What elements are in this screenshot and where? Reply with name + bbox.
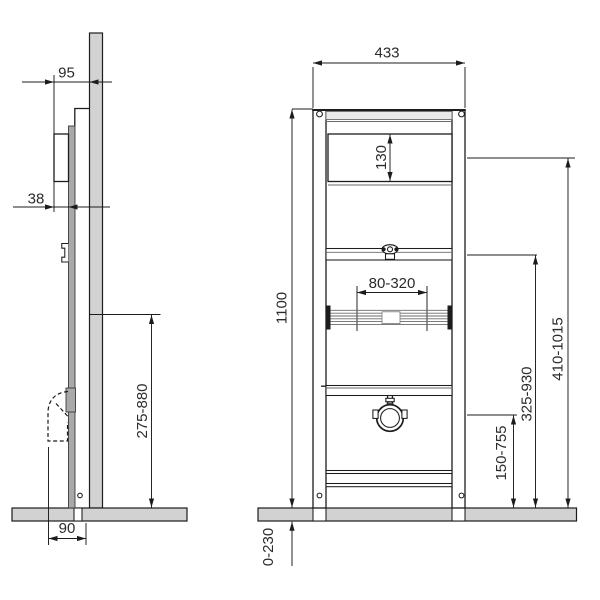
technical-drawing: 95 38 275-880 90 130 [0, 0, 600, 600]
fitting-wing-right [394, 247, 398, 251]
fixing-screw-side [78, 493, 83, 498]
rail-end-bracket-left [327, 306, 331, 330]
dim-label-433: 433 [374, 45, 399, 62]
frame-left-rail [313, 110, 326, 508]
rail-center-slider [382, 312, 400, 324]
drain-crossbar [326, 386, 452, 396]
lower-crossbar-upper [326, 471, 452, 474]
top-crossbar [326, 112, 452, 120]
drain-elbow-dashed [48, 392, 68, 442]
lower-crossbar-lower [326, 484, 452, 487]
frame-rail-side [69, 126, 76, 508]
dim-label-275-880: 275-880 [134, 383, 151, 438]
dim-label-325-930: 325-930 [518, 366, 535, 421]
pipe-clip-side [62, 244, 69, 263]
left-leg-through-floor [313, 508, 326, 521]
wall-bracket-side [75, 109, 90, 127]
dim-label-38: 38 [28, 191, 45, 208]
dim-label-80-320: 80-320 [369, 275, 416, 292]
screw-hole-bottom-right [459, 493, 464, 498]
clamp-inner-ring [381, 409, 400, 428]
frame-right-rail [452, 110, 465, 508]
dim-label-130: 130 [373, 145, 390, 170]
cistern-side [54, 134, 69, 182]
dim-label-410-1015: 410-1015 [549, 317, 566, 380]
fitting-wing-left [382, 247, 386, 251]
rail-end-bracket-right [448, 306, 452, 330]
screw-hole-bottom-left [317, 493, 322, 498]
clamp-bolt-left [373, 410, 378, 418]
dim-label-0-230: 0-230 [260, 528, 277, 566]
fitting-base [386, 254, 395, 259]
right-leg-through-floor [452, 508, 465, 521]
dim-label-150-755: 150-755 [493, 425, 510, 480]
front-view: 130 80-320 [258, 110, 577, 521]
dim-label-1100: 1100 [273, 292, 290, 324]
floor-slab-front [258, 508, 577, 521]
floor-slab-side [12, 508, 187, 521]
side-view-dimensions: 95 38 275-880 90 [13, 65, 161, 546]
adjustable-mounting-rail [327, 306, 452, 330]
wall-section [90, 33, 103, 508]
dim-label-95: 95 [58, 65, 75, 82]
front-view-dimensions: 433 1100 0-230 150-755 325-930 410-1015 [260, 45, 575, 567]
drawing-canvas: 95 38 275-880 90 130 [0, 0, 600, 600]
clamp-stem-cap [386, 398, 394, 401]
drain-pipe-clamp [373, 396, 407, 432]
screw-hole-top-left [317, 111, 323, 117]
clamp-bolt-right [402, 410, 407, 418]
screw-hole-top-right [459, 111, 465, 117]
dim-label-90: 90 [59, 520, 76, 537]
side-view [12, 33, 187, 521]
fitting-center [388, 247, 393, 252]
